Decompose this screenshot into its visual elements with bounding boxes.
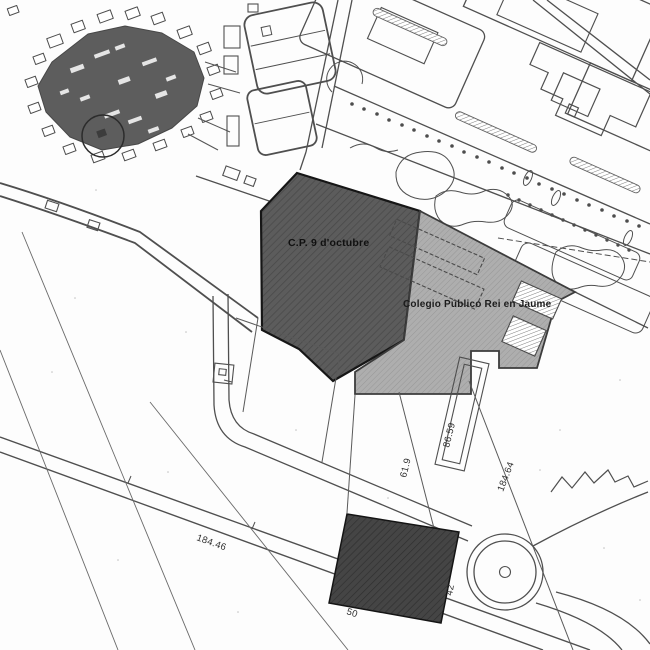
park-pond	[396, 152, 454, 200]
dim-42: 42	[444, 584, 457, 597]
dim-184-64: 184.64	[496, 460, 517, 493]
cp9-parcel-label: C.P. 9 d'octubre	[288, 237, 369, 249]
west-road	[0, 183, 258, 318]
middle-parcel-building	[213, 363, 234, 384]
park-blob	[435, 189, 513, 226]
road-184	[0, 452, 543, 650]
dim-184-46: 184.46	[195, 532, 228, 553]
street-vertical	[306, 0, 338, 152]
site-plan-svg: C.P. 9 d'octubre Colegio Público Rei en …	[0, 0, 650, 650]
hedge-strips	[372, 7, 642, 194]
site-plan-map: C.P. 9 d'octubre Colegio Público Rei en …	[0, 0, 650, 650]
zigzag-boundary	[551, 470, 648, 492]
dim-61-9: 61.9	[398, 457, 413, 479]
dim-50: 50	[345, 606, 359, 620]
roundabout	[467, 534, 543, 610]
inset-overview-map	[7, 5, 240, 162]
rei-jaume-parcel-label: Colegio Público Rei en Jaume	[403, 299, 552, 310]
